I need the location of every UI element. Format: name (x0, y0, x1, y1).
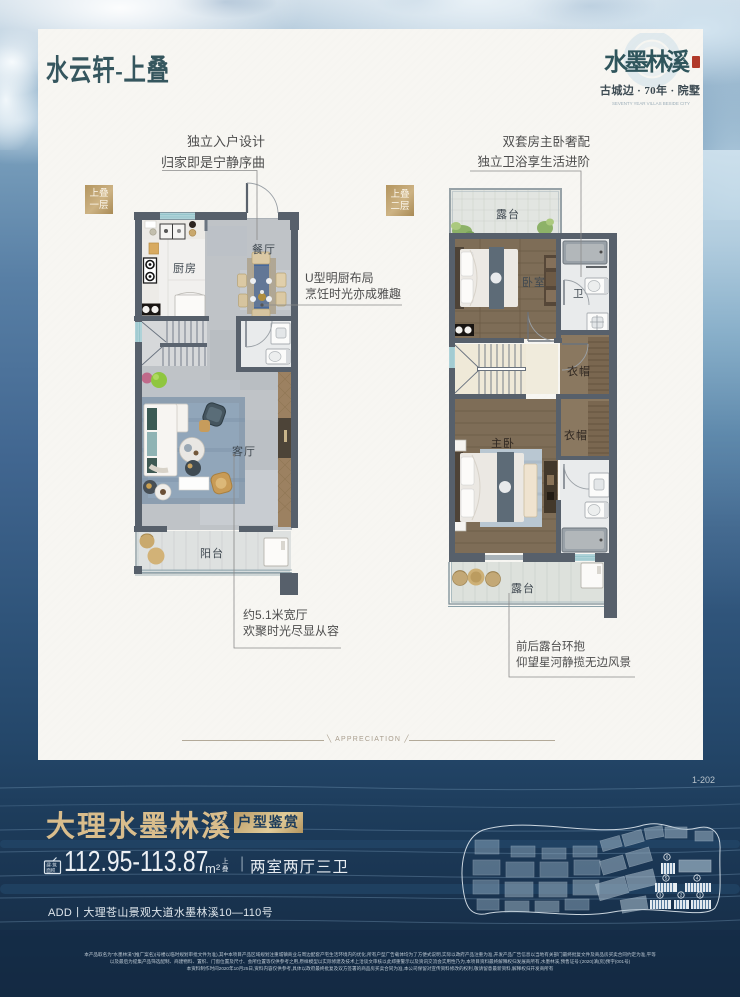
svg-text:衣帽: 衣帽 (567, 364, 591, 378)
svg-text:面积: 面积 (46, 867, 56, 874)
svg-text:厨房: 厨房 (173, 262, 197, 275)
svg-text:露台: 露台 (511, 581, 535, 595)
svg-text:客厅: 客厅 (232, 444, 256, 458)
svg-text:4: 4 (696, 876, 699, 881)
svg-text:2: 2 (680, 893, 683, 898)
svg-text:阳台: 阳台 (200, 546, 224, 560)
svg-text:1: 1 (699, 893, 702, 898)
svg-text:卧室: 卧室 (522, 275, 546, 289)
svg-text:古城边 · 70年 · 院墅: 古城边 · 70年 · 院墅 (600, 83, 700, 97)
svg-text:3: 3 (659, 893, 662, 898)
svg-text:餐厅: 餐厅 (252, 242, 276, 256)
svg-text:5: 5 (665, 876, 668, 881)
svg-text:卫: 卫 (573, 288, 585, 300)
svg-text:衣帽: 衣帽 (564, 428, 588, 442)
svg-text:露台: 露台 (496, 207, 520, 221)
svg-text:水墨林溪: 水墨林溪 (604, 49, 691, 76)
svg-text:6: 6 (666, 855, 669, 860)
svg-text:SEVENTY YEAR VILLAS BESIDE CIT: SEVENTY YEAR VILLAS BESIDE CITY (612, 101, 690, 106)
svg-text:主卧: 主卧 (491, 437, 515, 450)
